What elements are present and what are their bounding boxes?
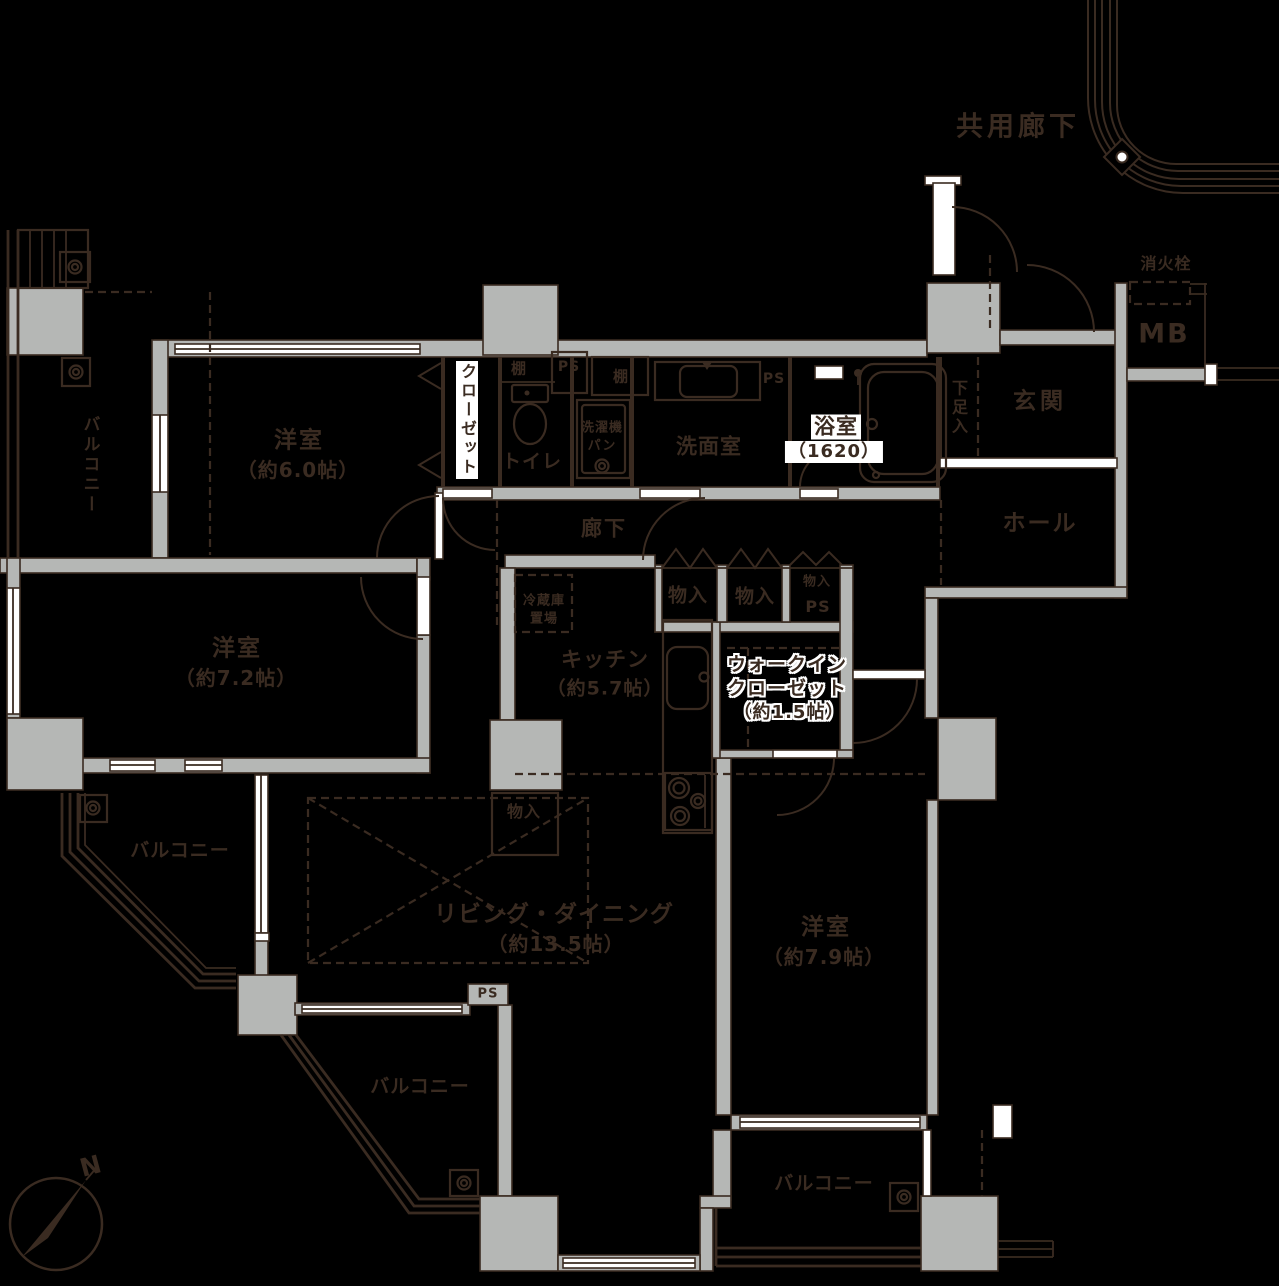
bedroom1-size: （約6.0帖） — [237, 460, 359, 480]
shelf-label-a: 棚 — [511, 362, 527, 377]
corridor-label: 廊下 — [581, 519, 627, 540]
common-corridor-label: 共用廊下 — [956, 114, 1080, 141]
shoe-box-label: 下足入 — [950, 380, 966, 437]
ps-label-b: PS — [763, 372, 785, 386]
balcony-label-c: バルコニー — [370, 1078, 470, 1097]
storage-label-b: 物入 — [735, 588, 775, 607]
washroom-label: 洗面室 — [676, 437, 742, 458]
kitchen-name: キッチン — [561, 650, 649, 671]
floor-plan: 共用廊下 消火栓 MB 玄関 下足入 ホール 廊下 浴室 （1620） 洗面室 … — [0, 0, 1279, 1286]
genkan-label: 玄関 — [1013, 391, 1067, 414]
storage-label-d: 物入 — [507, 804, 541, 820]
bifold-door-icon — [662, 549, 717, 568]
fire-hydrant-label: 消火栓 — [1140, 256, 1191, 272]
bedroom2-size: （約7.2帖） — [175, 668, 297, 688]
vanity-icon — [655, 362, 760, 400]
balcony-label-b: バルコニー — [130, 842, 230, 861]
bedroom3-size: （約7.9帖） — [763, 947, 885, 967]
sink-icon — [667, 647, 708, 709]
ps-label-a: PS — [558, 360, 580, 374]
bath-label: 浴室 — [811, 415, 861, 440]
kitchen-size: （約5.7帖） — [547, 680, 664, 699]
bifold-door-icon — [727, 549, 782, 568]
living-size: （約13.5帖） — [487, 934, 624, 954]
closet-folding-door-icon — [419, 452, 441, 478]
living-name: リビング・ダイニング — [434, 904, 674, 927]
fridge-label-top: 冷蔵庫 — [523, 595, 565, 608]
closet-folding-door-icon — [419, 363, 441, 389]
closet-label: クローゼット — [456, 361, 478, 479]
wic-label-line1: ウォークイン — [727, 656, 847, 675]
wic-size-label: （約1.5帖） — [734, 704, 845, 722]
bifold-door-icon — [790, 552, 842, 565]
shelf-label-b: 棚 — [613, 370, 629, 385]
balcony-label-a: バルコニー — [81, 415, 98, 515]
meter-box-label: MB — [1138, 321, 1189, 348]
entrance-door-leaf — [933, 183, 955, 275]
bedroom2-name: 洋室 — [212, 638, 262, 661]
toilet-icon — [512, 385, 548, 444]
bedroom3-name: 洋室 — [801, 917, 851, 940]
floor-plan-drawing — [0, 0, 1279, 1286]
balcony-label-d: バルコニー — [774, 1175, 874, 1194]
washer-label-top: 洗濯機 — [581, 422, 623, 435]
washer-label-bottom: パン — [588, 440, 617, 453]
toilet-label: トイレ — [502, 453, 562, 472]
hall-label: ホール — [1003, 513, 1078, 536]
fire-hydrant-box — [1130, 282, 1190, 304]
fridge-label-bottom: 置場 — [530, 613, 558, 626]
ps-label-c: PS — [805, 599, 830, 615]
wic-label-line2: クローゼット — [727, 680, 847, 699]
bath-size-label: （1620） — [785, 441, 883, 463]
bedroom1-name: 洋室 — [274, 430, 324, 453]
ps-label-d: PS — [478, 988, 499, 1001]
storage-label-c: 物入 — [803, 576, 831, 589]
kitchen-counter-icon — [663, 620, 712, 833]
genkan-step — [940, 458, 1117, 468]
storage-label-a: 物入 — [668, 587, 708, 606]
